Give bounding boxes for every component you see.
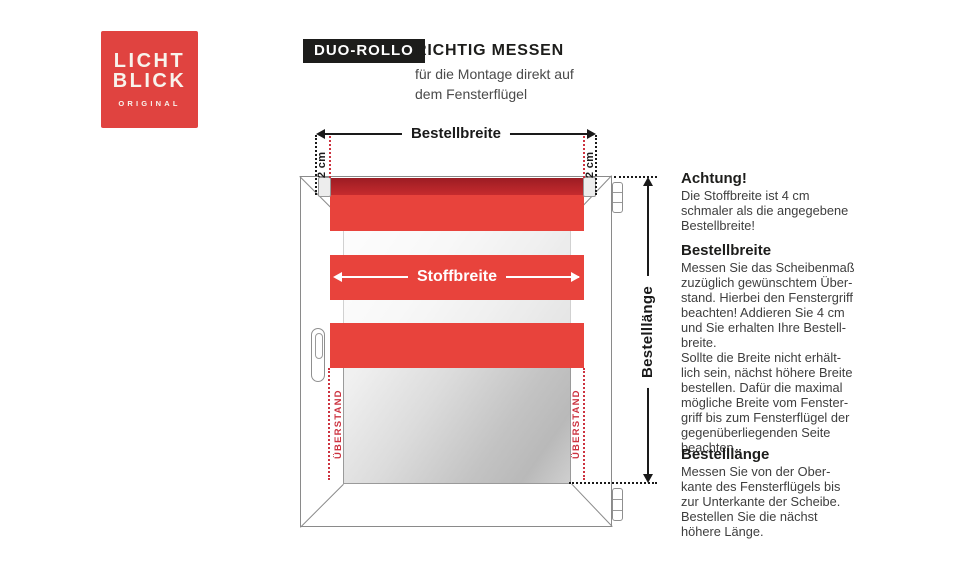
section-heading-achtung: Achtung! <box>681 170 861 187</box>
bestellbreite-label: Bestellbreite <box>402 124 510 143</box>
roller-tube <box>330 178 584 195</box>
arrowhead-white-left-icon <box>333 272 342 282</box>
stoffbreite-label: Stoffbreite <box>408 267 506 287</box>
sheer-stripe-2 <box>330 300 584 323</box>
logo-word-blick: BLICK <box>113 71 187 91</box>
section-heading-bestellbreite: Bestellbreite <box>681 242 861 259</box>
arrowhead-right-icon <box>587 129 596 139</box>
page-subtitle: für die Montage direkt auf dem Fensterfl… <box>415 65 574 104</box>
product-badge: DUO-ROLLO <box>303 39 425 63</box>
page-title: RICHTIG MESSEN <box>415 42 564 60</box>
mounting-bracket-left <box>318 177 331 197</box>
lichtblick-logo: LICHT BLICK ORIGINAL <box>101 31 198 128</box>
sheer-stripe-1 <box>330 231 584 255</box>
fabric-stripe-3 <box>330 323 584 368</box>
window-handle-neck <box>315 333 323 359</box>
measuring-guide-page: LICHT BLICK ORIGINAL DUO-ROLLO RICHTIG M… <box>0 0 960 587</box>
overhang-dotted-right <box>583 368 585 480</box>
bestelllaenge-label: Bestelllänge <box>638 276 657 388</box>
arrowhead-down-icon <box>643 474 653 483</box>
logo-tagline: ORIGINAL <box>118 99 180 108</box>
section-body-bestelllaenge: Messen Sie von der Ober- kante des Fenst… <box>681 464 861 539</box>
hinge-top <box>612 182 623 213</box>
section-body-bestellbreite: Messen Sie das Scheibenmaß zuzüglich gew… <box>681 260 861 455</box>
section-body-achtung: Die Stoffbreite ist 4 cm schmaler als di… <box>681 188 861 233</box>
fabric-stripe-1 <box>330 195 584 231</box>
ueberstand-label-left: ÜBERSTAND <box>333 399 344 459</box>
two-cm-label-right: 2 cm <box>584 140 596 178</box>
window-handle <box>311 328 325 382</box>
two-cm-label-left: 2 cm <box>316 140 328 178</box>
ueberstand-label-right: ÜBERSTAND <box>571 399 582 459</box>
arrowhead-left-icon <box>316 129 325 139</box>
arrowhead-white-right-icon <box>571 272 580 282</box>
logo-word-licht: LICHT <box>114 51 185 71</box>
guide-dotted-fabric-left <box>329 136 331 178</box>
arrowhead-up-icon <box>643 177 653 186</box>
section-heading-bestelllaenge: Bestelllänge <box>681 446 861 463</box>
hinge-bottom <box>612 488 623 521</box>
overhang-dotted-left <box>328 368 330 480</box>
